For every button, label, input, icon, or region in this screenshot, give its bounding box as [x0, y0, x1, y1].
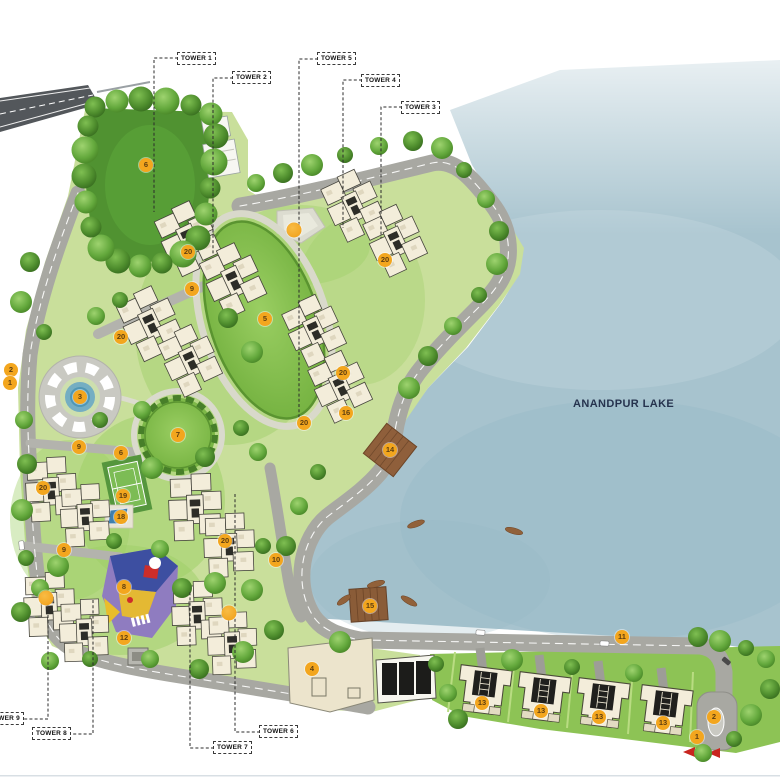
tree — [152, 253, 173, 274]
tree — [310, 464, 326, 480]
tree — [403, 131, 423, 151]
tree — [195, 447, 215, 467]
marker-15: 15 — [363, 599, 377, 613]
feature-dot — [39, 591, 54, 606]
marker-5: 5 — [258, 312, 272, 326]
marker-20: 20 — [336, 366, 350, 380]
marker-13: 13 — [656, 716, 670, 730]
tower-label-tower-6: TOWER 6 — [259, 725, 298, 738]
tree — [189, 659, 209, 679]
marker-20: 20 — [218, 534, 232, 548]
tree — [85, 97, 106, 118]
marker-9: 9 — [57, 543, 71, 557]
tree — [153, 88, 180, 115]
tree — [78, 116, 99, 137]
marker-20: 20 — [181, 245, 195, 259]
lake-name-label: ANANDPUR LAKE — [573, 398, 674, 410]
marker-1: 1 — [690, 730, 704, 744]
tree — [249, 443, 267, 461]
amenity-building — [376, 655, 436, 703]
tree — [448, 709, 468, 729]
marker-7: 7 — [171, 428, 185, 442]
tree — [87, 307, 105, 325]
tree — [247, 174, 265, 192]
marker-10: 10 — [269, 553, 283, 567]
tree — [41, 652, 59, 670]
marker-2: 2 — [4, 363, 18, 377]
marker-11: 11 — [615, 630, 629, 644]
marker-4: 4 — [305, 662, 319, 676]
marker-3: 3 — [73, 390, 87, 404]
tree — [195, 203, 218, 226]
tower-label-tower-1: TOWER 1 — [177, 52, 216, 65]
marker-12: 12 — [117, 631, 131, 645]
tree — [82, 651, 98, 667]
tree — [740, 704, 762, 726]
tree — [133, 401, 151, 419]
marker-13: 13 — [534, 704, 548, 718]
tree — [151, 540, 169, 558]
tree — [112, 292, 128, 308]
tree — [398, 377, 420, 399]
marker-1: 1 — [3, 376, 17, 390]
tree — [726, 731, 742, 747]
tree — [418, 346, 438, 366]
tree — [444, 317, 462, 335]
tree — [200, 103, 223, 126]
tree — [290, 497, 308, 515]
tree — [760, 679, 780, 699]
tree — [625, 664, 643, 682]
tree — [273, 163, 293, 183]
tree — [72, 164, 97, 189]
marker-2: 2 — [707, 710, 721, 724]
tree — [456, 162, 472, 178]
tree — [129, 255, 152, 278]
tree — [172, 578, 192, 598]
tree — [47, 555, 69, 577]
tower-label-tower-4: TOWER 4 — [361, 74, 400, 87]
feature-dot — [287, 223, 302, 238]
tree — [337, 147, 353, 163]
tower-label-tower-8: TOWER 8 — [32, 727, 71, 740]
tree — [255, 538, 271, 554]
marker-14: 14 — [383, 443, 397, 457]
tree — [439, 684, 457, 702]
feature-dot — [222, 606, 237, 621]
tree — [757, 650, 775, 668]
tree — [329, 631, 351, 653]
tree — [88, 235, 115, 262]
tree — [241, 579, 263, 601]
marker-13: 13 — [475, 696, 489, 710]
clubhouse — [288, 638, 374, 712]
tree — [564, 659, 580, 675]
tree — [11, 499, 33, 521]
tree — [11, 602, 31, 622]
tree — [201, 149, 228, 176]
tree — [233, 420, 249, 436]
tree — [75, 191, 98, 214]
marker-9: 9 — [185, 282, 199, 296]
tower-label-tower-2: TOWER 2 — [232, 71, 271, 84]
marker-20: 20 — [297, 416, 311, 430]
tree — [181, 95, 202, 116]
marker-16: 16 — [339, 406, 353, 420]
tree — [694, 744, 712, 762]
tree — [501, 649, 523, 671]
tree — [92, 412, 108, 428]
marker-20: 20 — [36, 481, 50, 495]
tree — [106, 90, 129, 113]
tree — [18, 550, 34, 566]
tree — [738, 640, 754, 656]
tree — [141, 457, 163, 479]
tree — [20, 252, 40, 272]
marker-8: 8 — [117, 580, 131, 594]
marker-6: 6 — [139, 158, 153, 172]
site-master-plan: ANANDPUR LAKE 21345667899910111213131313… — [0, 0, 780, 780]
tree — [709, 630, 731, 652]
tower-label-tower-9: TOWER 9 — [0, 712, 24, 725]
page-edge-line — [0, 775, 780, 777]
tree — [129, 87, 154, 112]
tree — [431, 137, 453, 159]
tree — [141, 650, 159, 668]
tower-label-tower-3: TOWER 3 — [401, 101, 440, 114]
tree — [204, 572, 226, 594]
tree — [688, 627, 708, 647]
site-plan-drawing — [0, 0, 780, 780]
tower-label-tower-5: TOWER 5 — [317, 52, 356, 65]
tree — [200, 178, 221, 199]
tree — [17, 454, 37, 474]
marker-6: 6 — [114, 446, 128, 460]
marker-19: 19 — [116, 489, 130, 503]
tree — [264, 620, 284, 640]
tree — [81, 217, 102, 238]
marker-13: 13 — [592, 710, 606, 724]
marker-9: 9 — [72, 440, 86, 454]
tower-label-tower-7: TOWER 7 — [213, 741, 252, 754]
marker-20: 20 — [378, 253, 392, 267]
tree — [10, 291, 32, 313]
tree — [370, 137, 388, 155]
tree — [486, 253, 508, 275]
marker-18: 18 — [114, 510, 128, 524]
tree — [301, 154, 323, 176]
tree — [218, 308, 238, 328]
marker-20: 20 — [114, 330, 128, 344]
tree — [106, 533, 122, 549]
tree — [36, 324, 52, 340]
tree — [241, 341, 263, 363]
tree — [15, 411, 33, 429]
tree — [477, 190, 495, 208]
tree — [204, 124, 229, 149]
tree — [428, 656, 444, 672]
tree — [471, 287, 487, 303]
tree — [489, 221, 509, 241]
tree — [72, 137, 99, 164]
